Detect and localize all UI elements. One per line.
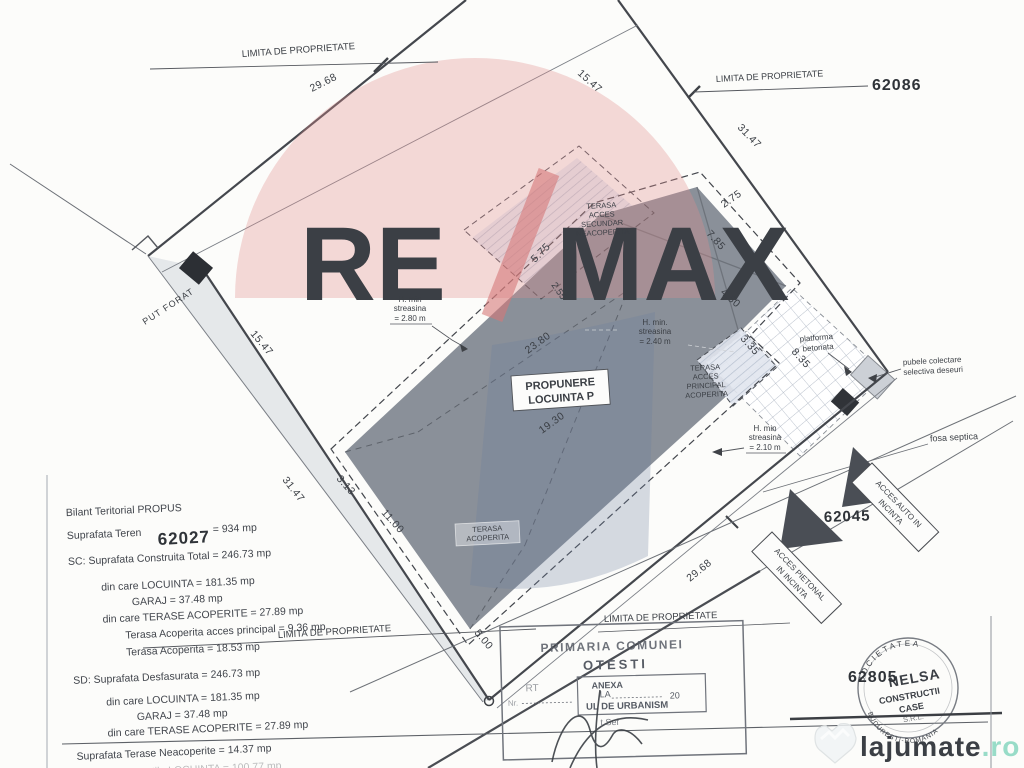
- legend-garaj-1: GARAJ = 37.48 mp: [132, 592, 223, 608]
- site-plan-svg: RE MAX LIMITA DE PROPRIETATE LIMITA DE P…: [0, 0, 1024, 768]
- anexa-2: LA: [600, 689, 611, 699]
- legend-terasa-acoperita: Terasa Acoperita = 18.53 mp: [126, 641, 261, 659]
- limita-top-label: LIMITA DE PROPRIETATE: [241, 41, 355, 60]
- nr-dotted-line: [522, 702, 572, 703]
- limita-topright-leader: [694, 86, 868, 92]
- legend-teren: Suprafata Teren: [67, 527, 142, 542]
- h-min-mid-2: streasina: [639, 327, 672, 336]
- parcel-62805: 62805: [848, 669, 898, 686]
- lajumate-heart-shape: [815, 724, 856, 763]
- legend-locuinta-1: din care LOCUINTA = 181.35 mp: [101, 575, 255, 594]
- legend-neacoperite: Suprafata Terase Neacoperite = 14.37 mp: [76, 742, 272, 763]
- h-min-nw-3: = 2.80 m: [394, 314, 426, 323]
- h-min-mid-3: = 2.40 m: [639, 337, 671, 346]
- legend-title: Bilant Teritorial PROPUS: [66, 502, 182, 519]
- bottom-right-thick-line: [790, 713, 1002, 719]
- h-min-se-3: = 2.10 m: [749, 443, 781, 452]
- dim-right-edge: 31.47: [735, 122, 764, 151]
- lajumate-icon: [815, 724, 856, 763]
- h-min-nw-2: streasina: [394, 304, 427, 313]
- stamp-nr: Nr.: [508, 699, 518, 708]
- legend-locuinta-2: din care LOCUINTA = 181.35 mp: [106, 690, 260, 709]
- h-min-nw-1: H. min: [398, 295, 421, 304]
- west-extension-line: [10, 164, 146, 254]
- limita-topright-label: LIMITA DE PROPRIETATE: [716, 68, 824, 84]
- pubele-2: selectiva deseuri: [903, 365, 963, 377]
- legend-garaj-2: GARAJ = 37.48 mp: [137, 707, 228, 723]
- dim-top-edge: 29.68: [308, 71, 339, 95]
- remax-balloon-blue: [470, 312, 655, 589]
- primaria-line2: OTESTI: [583, 656, 648, 673]
- primaria-stamp: PRIMARIA COMUNEI OTESTI ANEXA LA UL DE U…: [500, 621, 746, 760]
- site-plan-scan: RE MAX LIMITA DE PROPRIETATE LIMITA DE P…: [0, 0, 1024, 768]
- limita-top-leader: [150, 62, 438, 69]
- legend-sd: SD: Suprafata Desfasurata = 246.73 mp: [73, 667, 261, 687]
- legend-sc: SC: Suprafata Construita Total = 246.73 …: [68, 547, 272, 568]
- h-min-se: H. min streasina = 2.10 m: [712, 424, 786, 456]
- stamp-fragment: RT: [525, 683, 538, 694]
- stamp-year: 20: [670, 690, 680, 700]
- parcel-62027: 62027: [157, 527, 210, 549]
- terasa-acoperita-label: TERASA ACOPERITA: [455, 521, 520, 546]
- lajumate-tld: .ro: [982, 731, 1021, 762]
- parcel-62045: 62045: [824, 507, 871, 526]
- h-min-mid-1: H. min.: [642, 318, 667, 327]
- fosa-text: fosa septica: [930, 431, 978, 444]
- dim-left-edge: 31.47: [280, 474, 307, 504]
- lajumate-text: lajumate.ro: [860, 731, 1020, 762]
- proposal-label-box: PROPUNERE LOCUINTA P: [511, 369, 610, 411]
- lajumate-watermark: lajumate.ro: [815, 724, 1020, 763]
- parcel-62086: 62086: [872, 77, 922, 94]
- legend-teren-value: = 934 mp: [213, 522, 258, 536]
- year-dotted-line: [612, 697, 662, 698]
- h-min-se-2: streasina: [749, 433, 782, 442]
- access-markers: ACCES AUTO IN INCINTA ACCES PIETONAL IN …: [752, 447, 939, 623]
- dim-bottom-edge: 29.68: [684, 557, 714, 584]
- h-min-se-arrow: [712, 448, 722, 456]
- lajumate-word: lajumate: [860, 731, 982, 762]
- primaria-line1: PRIMARIA COMUNEI: [540, 637, 683, 655]
- h-min-se-1: H. min: [753, 424, 776, 433]
